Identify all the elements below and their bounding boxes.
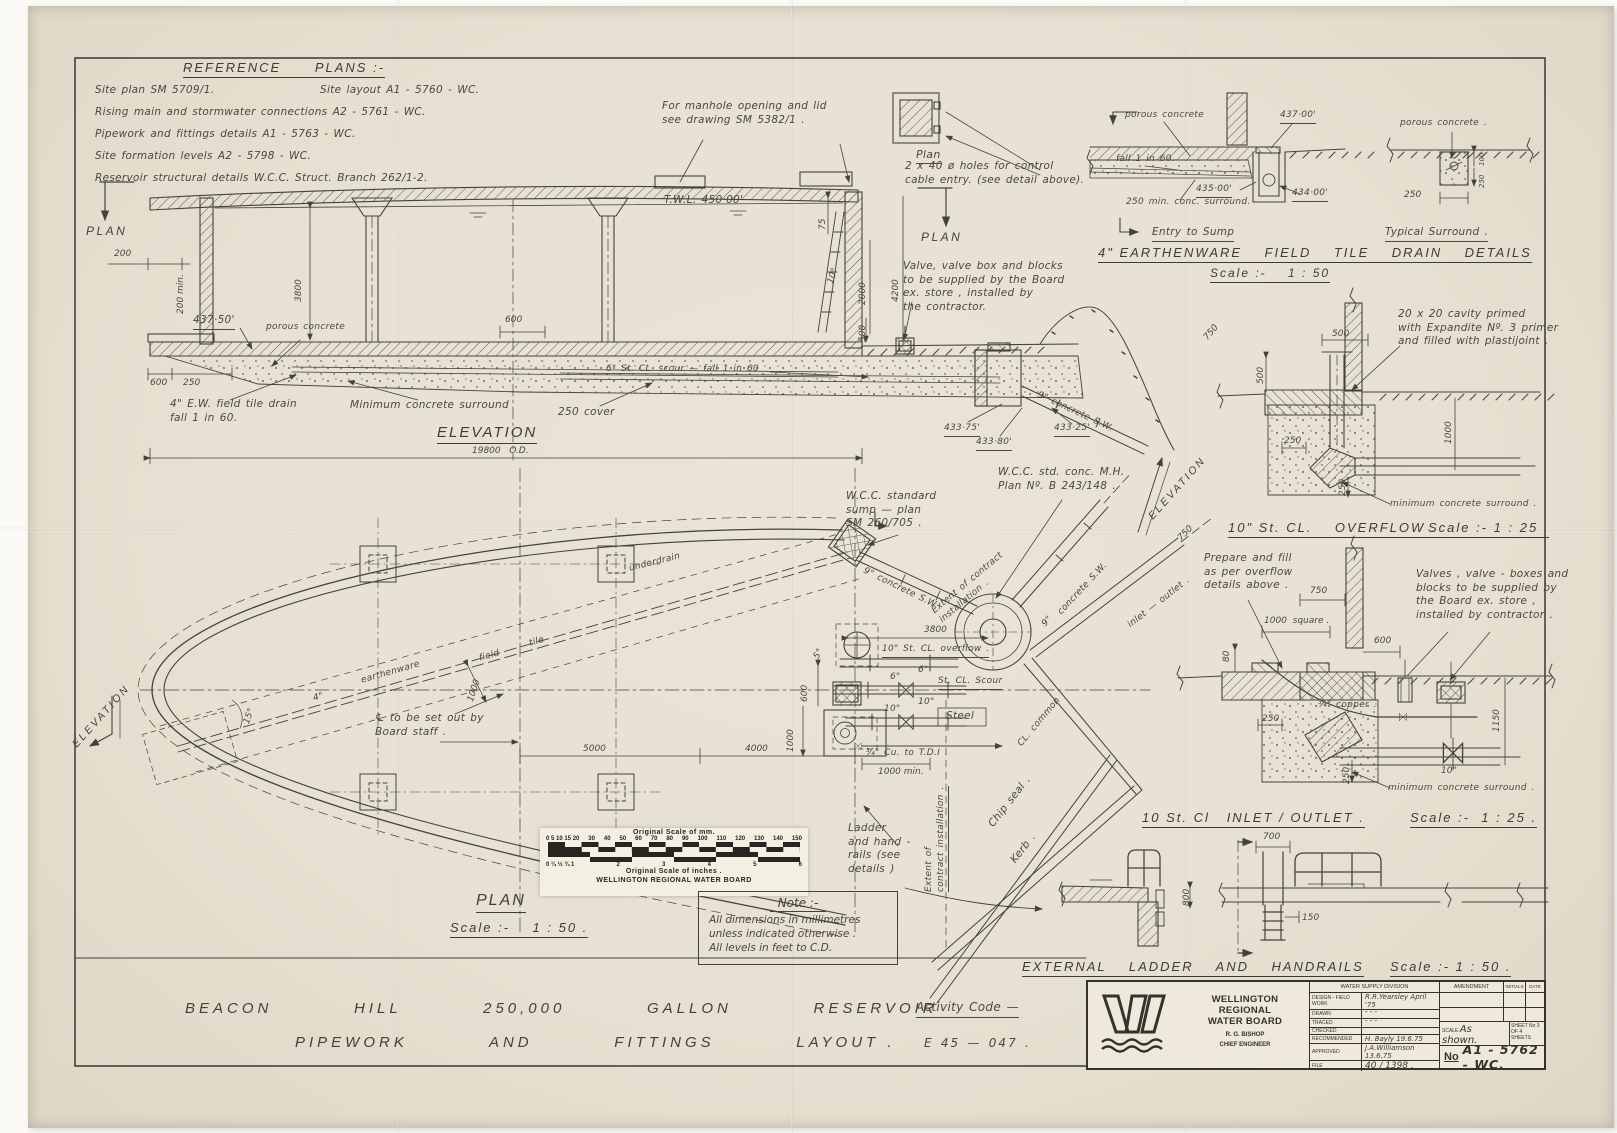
pipe-size: 6": [890, 672, 900, 684]
fall-label: fall 1 in 60: [1116, 154, 1172, 166]
ref-line: Site plan SM 5709/1.: [95, 84, 214, 98]
plan-drawing: [90, 458, 1212, 1003]
tick: 5: [753, 862, 756, 868]
row-label: APPROVED: [1310, 1044, 1362, 1060]
dim: 1000 square .: [1264, 616, 1329, 626]
centreline-note: ℄ to be set out by Board staff .: [375, 712, 484, 739]
copper-label: ¾" copper .: [1318, 700, 1377, 712]
dim: 10": [1441, 766, 1457, 776]
no-label: No: [1440, 1051, 1463, 1063]
row-value: J.A.Williamson 13.6.75: [1362, 1044, 1439, 1060]
typical-surround-label: Typical Surround .: [1385, 226, 1488, 242]
level: 435·00': [1196, 184, 1232, 198]
note-line: unless indicated otherwise .: [699, 928, 897, 940]
file-label: FILE: [1310, 1061, 1362, 1071]
amendment-header: AMENDMENT: [1440, 982, 1504, 992]
valve-note: Valve, valve box and blocks to be suppli…: [903, 260, 1065, 315]
activity-code-label: Activity Code —: [916, 1000, 1019, 1018]
tick: 30: [588, 836, 595, 842]
elevation-title: ELEVATION: [437, 424, 537, 444]
initials-header: INITIALS: [1504, 982, 1526, 992]
ref-line: Site layout A1 - 5760 - WC.: [320, 84, 479, 98]
pipe-size: 10": [884, 704, 901, 716]
note-box: Note :- All dimensions in millimetres un…: [698, 891, 898, 965]
dim: 250: [1338, 479, 1348, 496]
prepare-note: Prepare and fill as per overflow details…: [1204, 552, 1293, 593]
ladder-title: EXTERNAL LADDER AND HANDRAILS: [1022, 959, 1364, 977]
note-line: All levels in feet to C.D.: [699, 942, 897, 954]
level: 437·00': [1280, 110, 1316, 124]
dim: 2000: [858, 282, 868, 305]
tick: 50: [620, 836, 627, 842]
date-header: DATE: [1526, 982, 1544, 992]
dim: 600: [800, 685, 810, 702]
title-block-division-cell: WATER SUPPLY DIVISION DESIGN - FIELD WOR…: [1310, 982, 1440, 1068]
note-title: Note :-: [770, 896, 827, 912]
chief-engineer: R. G. BISHOPCHIEF ENGINEER: [1184, 1030, 1306, 1050]
dim: 1000: [786, 729, 796, 752]
ladder-note: Ladder and hand - rails (see details ): [848, 822, 911, 877]
tick: 60: [635, 836, 642, 842]
row-label: DRAWN: [1310, 1010, 1362, 1018]
dim: 500: [1256, 367, 1266, 384]
tile-details-title: 4" EARTHENWARE FIELD TILE DRAIN DETAILS: [1098, 245, 1532, 263]
dim: 200 min.: [176, 274, 186, 314]
dim: 4200: [891, 279, 901, 302]
dim: 250: [1284, 436, 1301, 446]
dim: 250: [1478, 175, 1486, 188]
extent-note-vertical: Extent of contract installation .: [924, 786, 949, 892]
tick: 90: [682, 836, 689, 842]
tick: 150: [792, 836, 802, 842]
amendment-row: [1440, 1008, 1544, 1023]
drawing-title-line1: BEACON HILL 250,000 GALLON RESERVOIR: [185, 1000, 938, 1017]
ref-line: Pipework and fittings details A1 - 5763 …: [95, 128, 356, 142]
tick: 130: [754, 836, 764, 842]
dim: 150: [1302, 913, 1319, 923]
scale-bar-inch-title: Original Scale of inches .: [540, 868, 808, 875]
plan-scale: Scale :- 1 : 50 .: [450, 920, 588, 938]
dim: 200: [114, 249, 131, 259]
ref-line: Rising main and stormwater connections A…: [95, 106, 426, 120]
dim: 1000 min.: [878, 767, 924, 777]
wrwb-logo-icon: [1096, 992, 1184, 1054]
tick: 110: [717, 836, 727, 842]
file-value: 40 / 1398 .: [1362, 1061, 1439, 1071]
tick: 6: [799, 862, 802, 868]
entry-to-sump-label: Entry to Sump: [1152, 226, 1234, 242]
tick: 140: [773, 836, 783, 842]
scale-bar-org: WELLINGTON REGIONAL WATER BOARD: [540, 877, 808, 884]
dim: 80: [1222, 651, 1232, 662]
manhole-ref-note: W.C.C. std. conc. M.H. Plan Nº. B 243/14…: [998, 466, 1125, 493]
row-label: TRACED: [1310, 1019, 1362, 1027]
level: 434·00': [1292, 188, 1328, 202]
inlet-outlet-title: 10 St. Cl INLET / OUTLET .: [1142, 810, 1365, 828]
overflow-scale: Scale :- 1 : 25 .: [1428, 520, 1549, 538]
dim: 800: [1182, 889, 1192, 906]
tick: 120: [735, 836, 745, 842]
row-value: R.R.Yearsley April '75: [1362, 993, 1439, 1009]
cable-entry-note: 2 x 40 ø holes for control cable entry. …: [905, 160, 1084, 187]
ref-line: Site formation levels A2 - 5798 - WC.: [95, 150, 311, 164]
copper-tdi-label: ¾" Cu. to T.D.I .: [866, 748, 948, 760]
dim: 500: [1332, 329, 1349, 339]
level: 433·75': [944, 423, 980, 437]
steel-pipe-label: Steel: [946, 710, 974, 724]
scale-bar-mm-title: Original Scale of mm.: [540, 829, 808, 836]
scour-pipe-label: St. CL. Scour: [938, 676, 1002, 690]
row-label: DESIGN - FIELD WORK: [1310, 993, 1362, 1009]
cover-note: 250 cover: [558, 406, 615, 420]
scale-label: SCALE: [1442, 1028, 1458, 1034]
pipe-size: 6": [918, 665, 928, 677]
tick: 40: [604, 836, 611, 842]
porous-concrete-label: porous concrete .: [1400, 118, 1487, 130]
row-value: H. Bayly 19.6.75: [1362, 1035, 1439, 1043]
drawing-number: A1 - 5762 - WC.: [1463, 1042, 1544, 1072]
title-block: WELLINGTON REGIONALWATER BOARD R. G. BIS…: [1086, 980, 1546, 1070]
surround-note: Minimum concrete surround: [350, 399, 509, 413]
title-block-amendment-cell: AMENDMENT INITIALS DATE SCALE As shown. …: [1440, 982, 1544, 1068]
row-value: ″ ″ ″: [1362, 1019, 1439, 1027]
activity-code-value: E 45 — 047 .: [924, 1036, 1031, 1052]
tile-drain-note: 4" E.W. field tile drain fall 1 in 60.: [170, 398, 297, 425]
plan-arrow-label-right: PLAN: [921, 230, 962, 244]
overflow-pipe-label: 10" St. CL. overflow .: [882, 644, 989, 658]
drawing-number-row: No A1 - 5762 - WC.: [1440, 1046, 1544, 1068]
tick: 70: [651, 836, 658, 842]
dim: 500: [858, 325, 868, 342]
plan-title: PLAN: [476, 892, 526, 913]
scanned-drawing-photo: REFERENCE PLANS :- Site plan SM 5709/1. …: [0, 0, 1617, 1133]
overflow-title: 10" St. CL. OVERFLOW .: [1228, 520, 1437, 538]
dim: 600: [150, 378, 167, 388]
surround-label: minimum concrete surround .: [1390, 499, 1537, 511]
level: 437·50': [193, 314, 235, 330]
row-value: ″ ″ ″: [1362, 1010, 1439, 1018]
dim: 100: [1478, 153, 1486, 166]
dim: 4000: [745, 744, 768, 754]
dim: 3800: [924, 625, 947, 635]
dim: 600: [505, 315, 522, 325]
surround-label: minimum concrete surround .: [1388, 783, 1535, 795]
amendment-row: [1440, 993, 1544, 1008]
twl-level: T.W.L. 450·00': [664, 194, 743, 208]
engineer-title: CHIEF ENGINEER: [1219, 1042, 1270, 1048]
porous-concrete-label: porous concrete: [266, 322, 345, 334]
sump-ref-note: W.C.C. standard sump — plan SM 260/705 .: [846, 490, 936, 531]
tick: 0 ¼ ½ ¾ 1: [546, 862, 574, 868]
cavity-note: 20 x 20 cavity primed with Expandite Nº.…: [1398, 308, 1558, 349]
surround-label: 250 min. conc. surround.: [1126, 197, 1251, 209]
valves-note: Valves , valve - boxes and blocks to be …: [1416, 568, 1568, 623]
ladder-scale: Scale :- 1 : 50 .: [1390, 959, 1511, 977]
tile-details-scale: Scale :- 1 : 50: [1210, 266, 1330, 283]
dim: 5000: [583, 744, 606, 754]
dim: 700: [1263, 832, 1280, 842]
ladder-detail: [1059, 840, 1548, 955]
dim: 250: [1404, 190, 1421, 200]
level: 433·80': [976, 437, 1012, 451]
row-label: RECOMMENDED: [1310, 1035, 1362, 1043]
dim: 250: [183, 378, 200, 388]
dim: 3800: [294, 279, 304, 302]
dim: 75: [818, 219, 828, 230]
drawing-title-line2: PIPEWORK AND FITTINGS LAYOUT .: [295, 1034, 896, 1051]
scour-pipe-label: 6" St. CL. scour — fall 1 in 60: [606, 364, 759, 376]
plan-arrow-label-left: PLAN: [86, 224, 127, 238]
inlet-outlet-scale: Scale :- 1 : 25 .: [1410, 810, 1537, 828]
tick: 80: [666, 836, 673, 842]
row-label: CHECKED: [1310, 1028, 1362, 1034]
org-name: WELLINGTON REGIONALWATER BOARD: [1184, 994, 1306, 1027]
division-header: WATER SUPPLY DIVISION: [1310, 982, 1439, 993]
dim: 1150: [1492, 709, 1502, 732]
scale-bar: Original Scale of mm. 0 5 10 15 20304050…: [540, 828, 808, 896]
ref-line: Reservoir structural details W.C.C. Stru…: [95, 172, 428, 186]
pipe-size: 10": [918, 697, 935, 709]
dim: 600: [1374, 636, 1391, 646]
title-block-org-cell: WELLINGTON REGIONALWATER BOARD R. G. BIS…: [1088, 982, 1310, 1068]
dim: 1000: [1444, 421, 1454, 444]
org-line1: WELLINGTON REGIONAL: [1212, 994, 1279, 1016]
reference-plans-title: REFERENCE PLANS :-: [183, 60, 385, 78]
tick: 100: [698, 836, 708, 842]
engineer-name: R. G. BISHOP: [1226, 1032, 1265, 1038]
dim: 250: [1262, 714, 1279, 724]
dim: 250: [1342, 767, 1352, 784]
dim: 19800 O.D.: [472, 446, 529, 456]
tick: 2: [617, 862, 620, 868]
note-line: All dimensions in millimetres: [699, 914, 897, 926]
dim: 750: [1310, 586, 1327, 596]
org-line2: WATER BOARD: [1208, 1016, 1282, 1027]
level: 433·25': [1054, 423, 1090, 437]
manhole-note: For manhole opening and lid see drawing …: [662, 100, 827, 127]
tick: 0 5 10 15 20: [546, 836, 579, 842]
porous-concrete-label: porous concrete: [1125, 110, 1204, 122]
